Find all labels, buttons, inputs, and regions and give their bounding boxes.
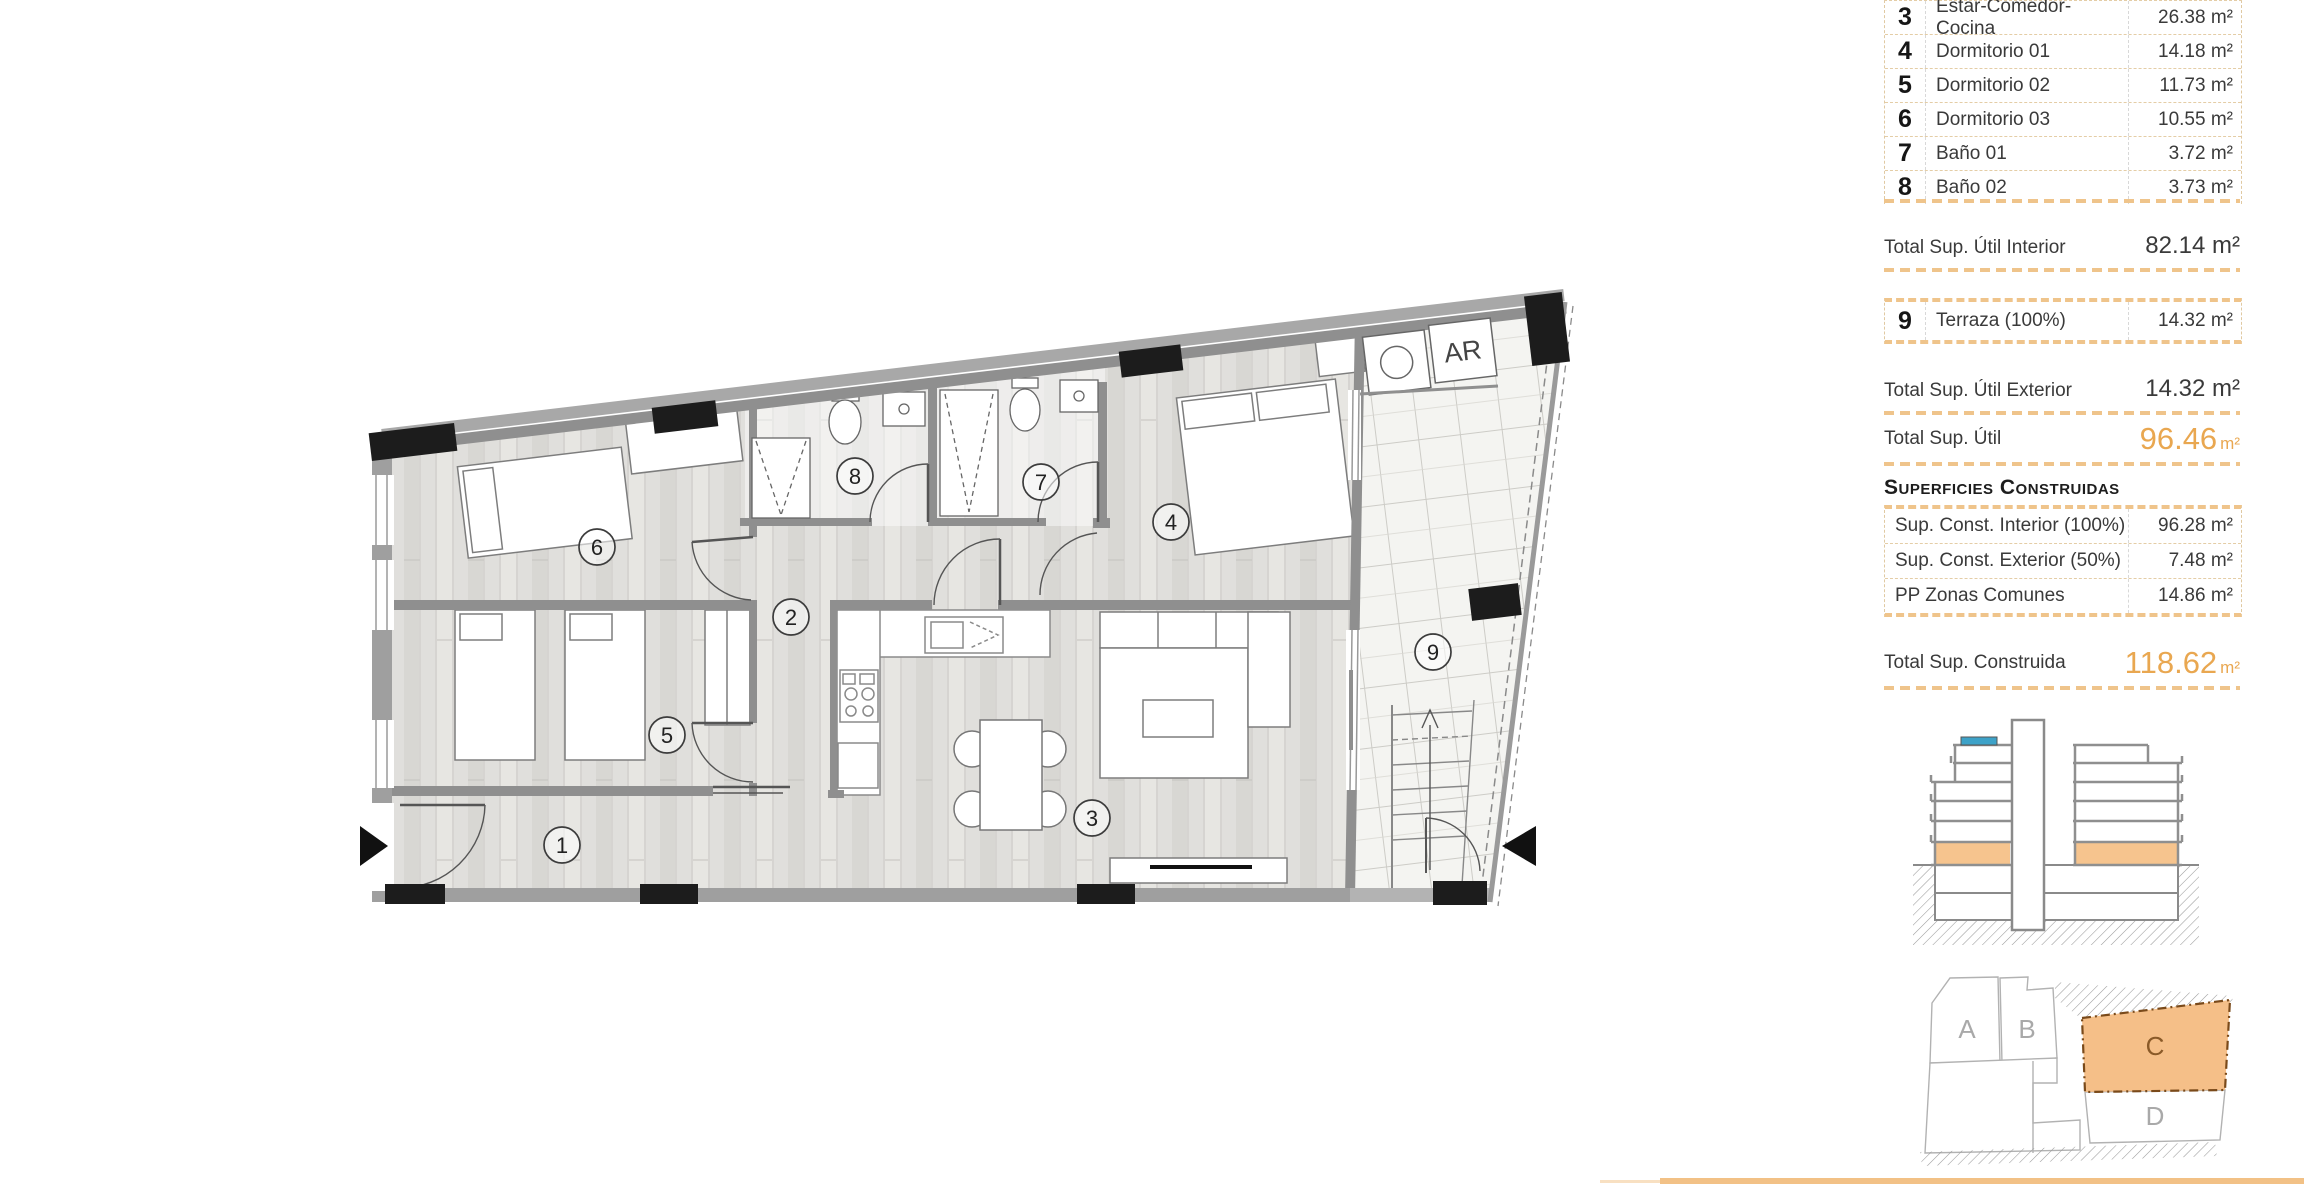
- block-c-label: C: [2146, 1031, 2165, 1061]
- table-row: Sup. Const. Interior (100%)96.28 m²: [1885, 509, 2241, 544]
- table-row: 6Dormitorio 0310.55 m²: [1885, 103, 2241, 137]
- svg-text:8: 8: [849, 464, 861, 489]
- row-value: 7.48 m²: [2128, 544, 2241, 578]
- page-border-bottom: [1660, 1178, 2304, 1184]
- basement: [1935, 865, 2178, 920]
- svg-text:5: 5: [661, 723, 673, 748]
- lower-block-outline: [1925, 1058, 2080, 1153]
- table-row: 4Dormitorio 0114.18 m²: [1885, 35, 2241, 69]
- room-area: 14.18 m²: [2128, 35, 2241, 68]
- window-3: [368, 720, 394, 788]
- sink-1: [883, 392, 925, 426]
- svg-text:7: 7: [1035, 470, 1047, 495]
- coffee-table: [1143, 700, 1213, 737]
- svg-text:2: 2: [785, 605, 797, 630]
- room-area: 11.73 m²: [2128, 69, 2241, 102]
- room-6-marker: 6: [579, 529, 615, 565]
- shower-2: [940, 390, 998, 516]
- pool: [1961, 737, 1997, 745]
- block-b-label: B: [2018, 1014, 2035, 1044]
- total-label: Total Sup. Construida: [1884, 652, 2066, 674]
- divider: [1884, 199, 2240, 203]
- table-row: PP Zonas Comunes14.86 m²: [1885, 579, 2241, 613]
- room-area: 26.38 m²: [2128, 1, 2241, 34]
- site-key-plan: A B C D: [1905, 960, 2240, 1175]
- table-row: 7Baño 013.72 m²: [1885, 137, 2241, 171]
- rooms-table: 3Estar-Comedor-Cocina26.38 m² 4Dormitori…: [1884, 0, 2242, 204]
- room-name: Dormitorio 02: [1925, 69, 2128, 102]
- total-util-interior: Total Sup. Útil Interior 82.14 m²: [1884, 232, 2240, 260]
- svg-text:6: 6: [591, 535, 603, 560]
- total-label: Total Sup. Útil: [1884, 428, 2001, 450]
- shower-1: [752, 438, 810, 518]
- room-1-marker: 1: [544, 827, 580, 863]
- room-number: 3: [1885, 3, 1925, 32]
- total-construida: Total Sup. Construida 118.62m²: [1884, 642, 2240, 684]
- room-name: Dormitorio 01: [1925, 35, 2128, 68]
- total-value: 118.62m²: [2125, 645, 2240, 681]
- left-tower: [1931, 737, 2013, 865]
- row-label: Sup. Const. Interior (100%): [1885, 509, 2128, 543]
- dining-table: [980, 720, 1042, 830]
- building-section-diagram: [1905, 715, 2235, 980]
- room-number: 5: [1885, 71, 1925, 100]
- room-area: 14.32 m²: [2128, 302, 2241, 340]
- divider: [1884, 411, 2240, 415]
- floor-plan: AR 1 2 3 4 5 6 7 8 9: [340, 270, 1600, 930]
- room-number: 8: [1885, 173, 1925, 202]
- divider: [1884, 462, 2240, 466]
- page-border-bottom-fade: [1600, 1180, 1660, 1183]
- block-d-label: D: [2146, 1101, 2165, 1131]
- divider: [1884, 686, 2240, 690]
- total-label: Total Sup. Útil Interior: [1884, 237, 2066, 259]
- room-number: 7: [1885, 139, 1925, 168]
- table-row: 9 Terraza (100%) 14.32 m²: [1885, 302, 2241, 340]
- construidas-table: Sup. Const. Interior (100%)96.28 m² Sup.…: [1884, 505, 2242, 617]
- room-7-marker: 7: [1023, 464, 1059, 500]
- room-number: 9: [1885, 307, 1925, 336]
- room-2-marker: 2: [773, 599, 809, 635]
- divider: [1884, 268, 2240, 272]
- table-row: Sup. Const. Exterior (50%)7.48 m²: [1885, 544, 2241, 579]
- core-tower: [2012, 720, 2044, 930]
- room-number: 4: [1885, 37, 1925, 66]
- total-value: 14.32 m²: [2145, 375, 2240, 403]
- toilet-2: [1010, 389, 1040, 431]
- svg-text:1: 1: [556, 833, 568, 858]
- row-label: Sup. Const. Exterior (50%): [1885, 544, 2128, 578]
- room-area: 10.55 m²: [2128, 103, 2241, 136]
- total-util-exterior: Total Sup. Útil Exterior 14.32 m²: [1884, 375, 2240, 403]
- svg-text:9: 9: [1427, 640, 1439, 665]
- svg-text:3: 3: [1086, 806, 1098, 831]
- window-2: [368, 560, 394, 630]
- room-name: Estar-Comedor-Cocina: [1925, 1, 2128, 34]
- highlighted-floor-right: [2075, 842, 2178, 865]
- right-tower: [2073, 745, 2182, 865]
- total-value: 96.46m²: [2140, 421, 2240, 457]
- room-area: 3.72 m²: [2128, 137, 2241, 170]
- total-util: Total Sup. Útil 96.46m²: [1884, 418, 2240, 460]
- terraza-table: 9 Terraza (100%) 14.32 m²: [1884, 298, 2242, 344]
- room-9-marker: 9: [1415, 634, 1451, 670]
- table-row: 3Estar-Comedor-Cocina26.38 m²: [1885, 1, 2241, 35]
- sink-2: [1060, 380, 1098, 412]
- toilet-tank-2: [1012, 378, 1038, 388]
- room-5-marker: 5: [649, 717, 685, 753]
- room-3-marker: 3: [1074, 800, 1110, 836]
- room-name: Baño 01: [1925, 137, 2128, 170]
- ar-label: AR: [1442, 334, 1483, 368]
- row-value: 14.86 m²: [2128, 579, 2241, 613]
- terrace-floor: [1352, 306, 1562, 898]
- row-label: PP Zonas Comunes: [1885, 579, 2128, 613]
- room-name: Terraza (100%): [1925, 302, 2128, 340]
- room-number: 6: [1885, 105, 1925, 134]
- total-label: Total Sup. Útil Exterior: [1884, 380, 2072, 402]
- room-4-marker: 4: [1153, 504, 1189, 540]
- plan-sheet: AR 1 2 3 4 5 6 7 8 9 3Estar-Comedor-Coci…: [0, 0, 2304, 1185]
- room-name: Dormitorio 03: [1925, 103, 2128, 136]
- table-row: 5Dormitorio 0211.73 m²: [1885, 69, 2241, 103]
- tv-cabinet: [1110, 858, 1287, 883]
- row-value: 96.28 m²: [2128, 509, 2241, 543]
- room-8-marker: 8: [837, 458, 873, 494]
- block-a-label: A: [1958, 1014, 1976, 1044]
- svg-text:4: 4: [1165, 510, 1177, 535]
- section-title: Superficies Construidas: [1884, 476, 2120, 500]
- total-value: 82.14 m²: [2145, 232, 2240, 260]
- window-1: [368, 475, 394, 545]
- toilet-1: [829, 400, 861, 444]
- highlighted-floor-left: [1935, 842, 2010, 865]
